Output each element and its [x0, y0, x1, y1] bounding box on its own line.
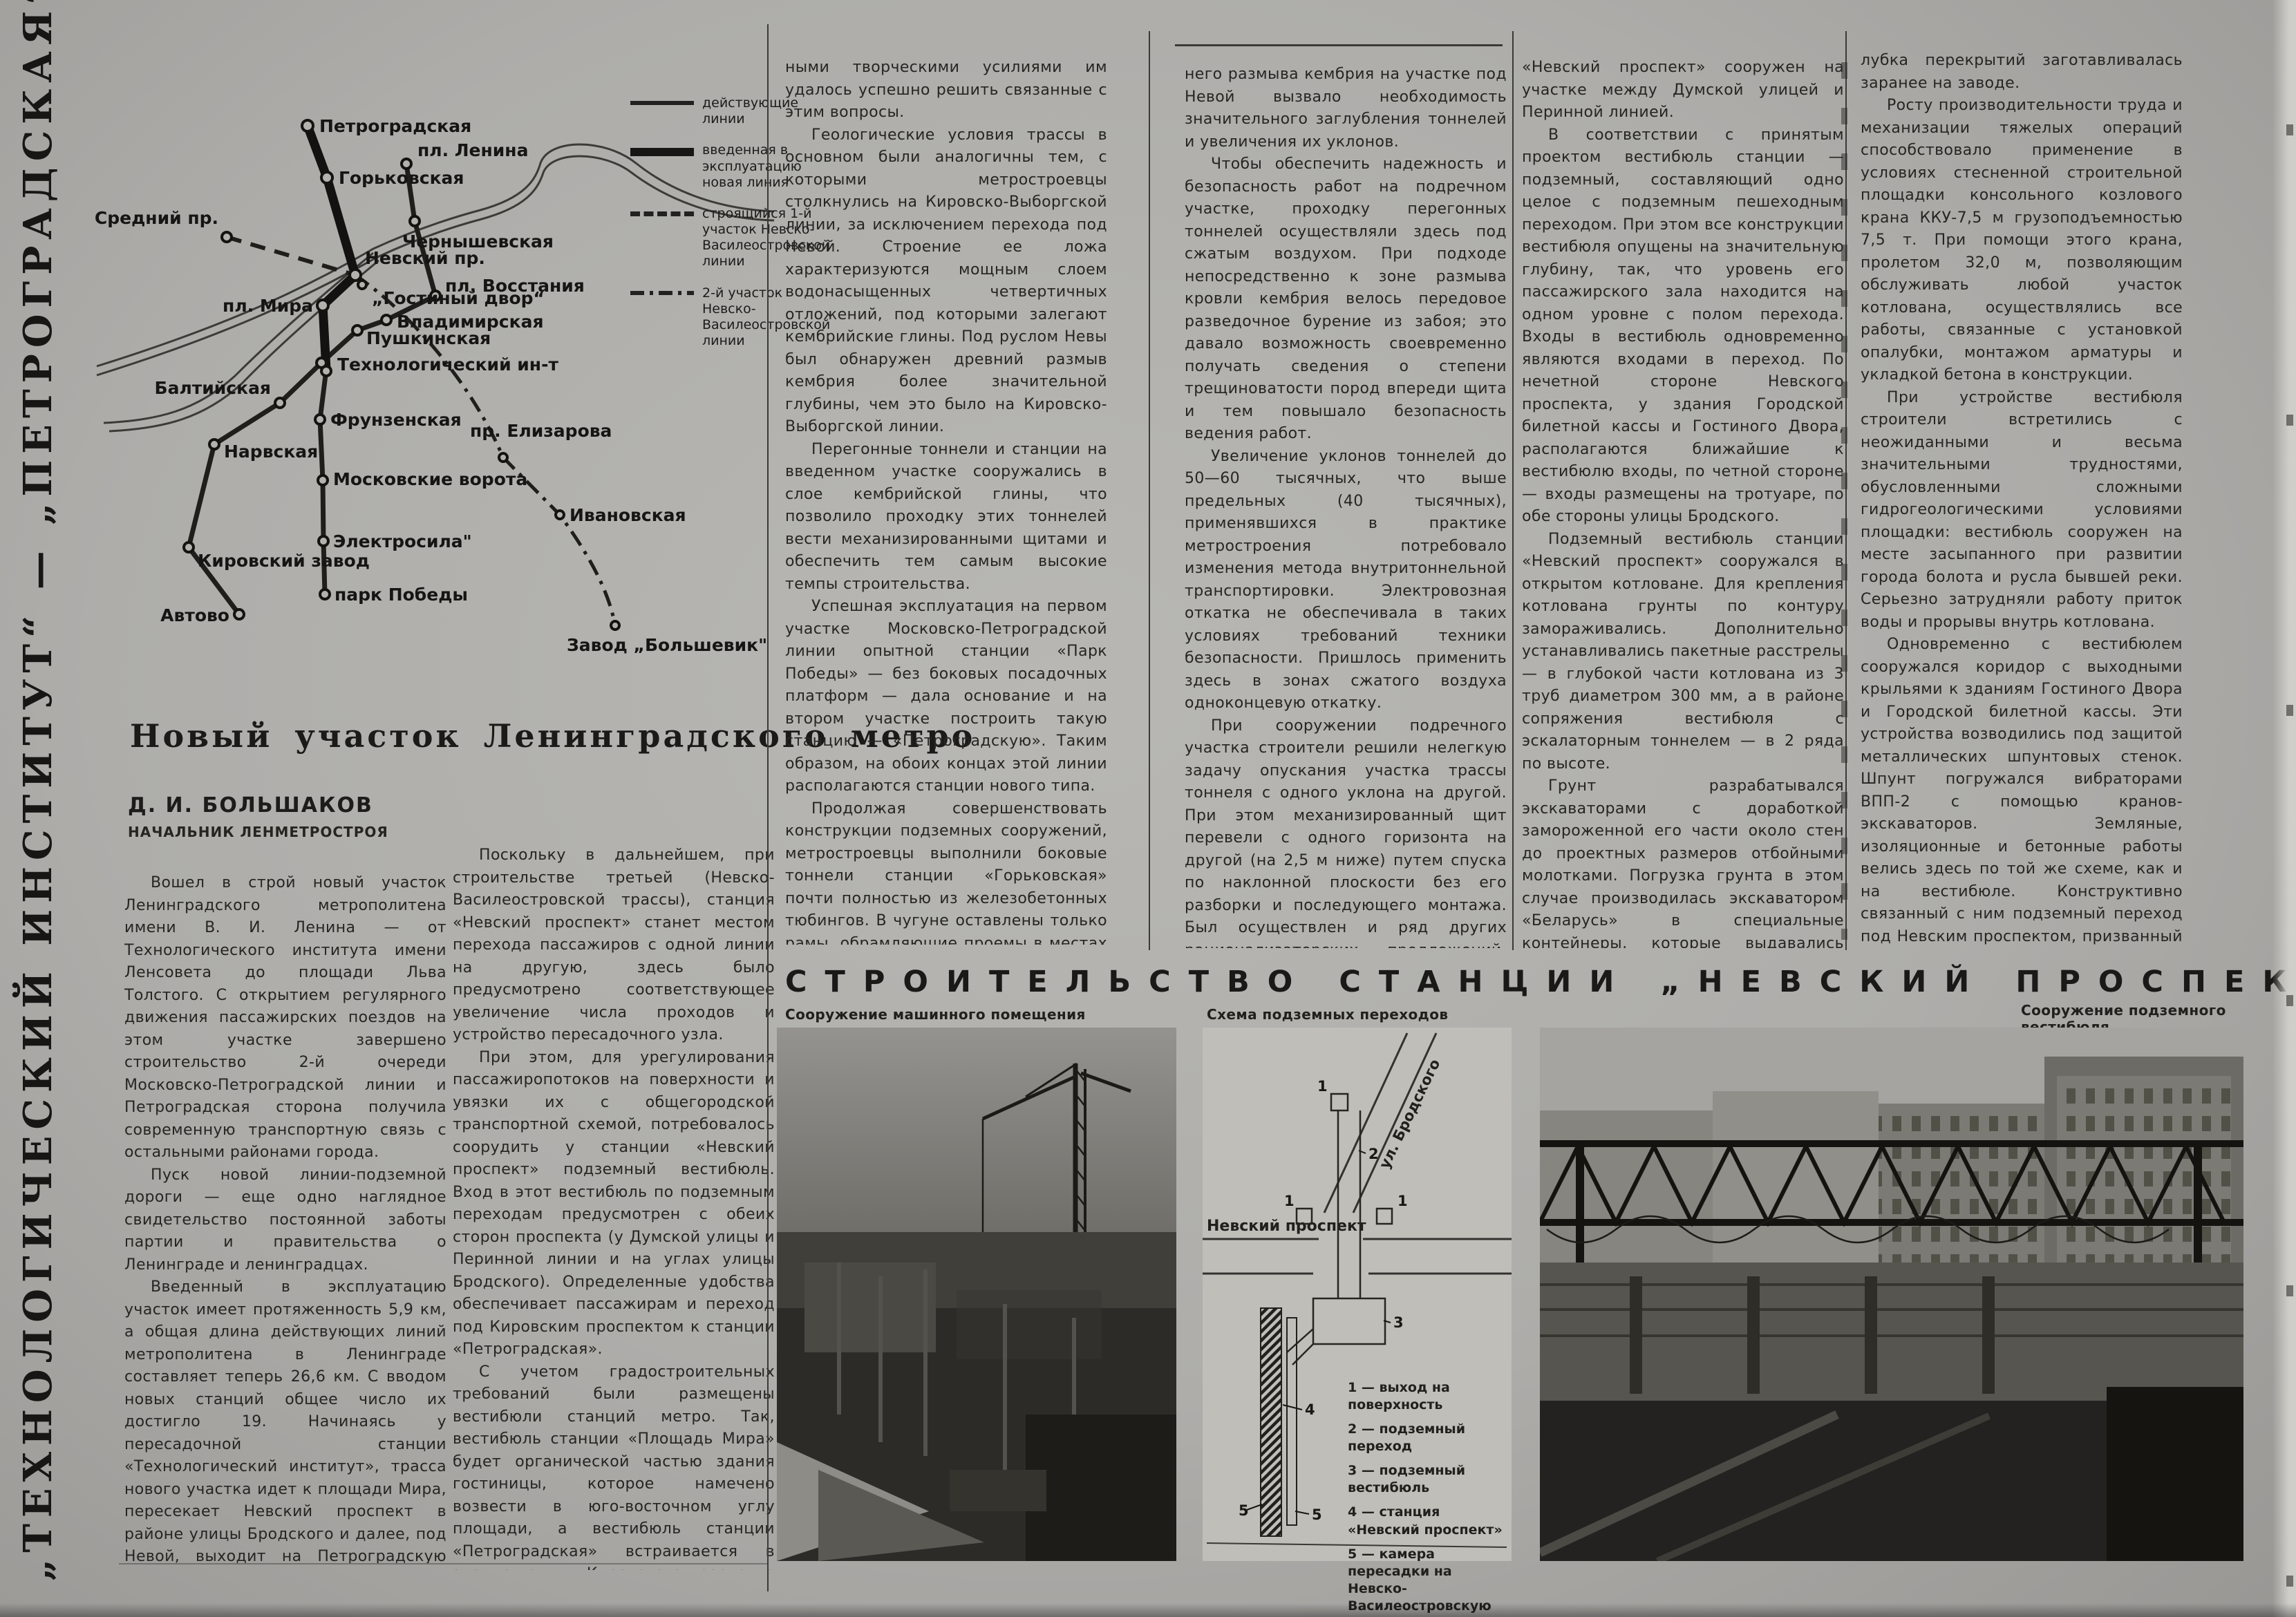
- column-divider: [767, 24, 769, 1591]
- map-legend-item: 2-й участок Невско-Василеостровской лини…: [630, 285, 803, 350]
- map-station-sredniy-pr: Средний пр.: [95, 208, 218, 228]
- diagram-marker-3: 3: [1393, 1314, 1404, 1331]
- scan-edge-bottom: [0, 1603, 2296, 1617]
- section-headline: СТРОИТЕЛЬСТВО СТАНЦИИ „НЕВСКИЙ ПРОСПЕКТ“: [785, 965, 2243, 999]
- diagram-legend: 1 — выход на поверхность 2 — подземный п…: [1348, 1379, 1504, 1617]
- article-column-5: «Невский проспект» сооружен на участке м…: [1522, 57, 1844, 948]
- map-station-zavod-bolshevik: Завод „Большевик": [567, 635, 767, 655]
- article-title: Новый участок Ленинградского метро: [130, 717, 766, 755]
- diagram-caption: Схема подземных переходов: [1207, 1006, 1448, 1023]
- scanned-newspaper-page: „ТЕХНОЛОГИЧЕСКИЙ ИНСТИТУТ“ — „ПЕТРОГРАДС…: [0, 0, 2296, 1617]
- article-author-role: НАЧАЛЬНИК ЛЕНМЕТРОСТРОЯ: [128, 824, 388, 840]
- article-column-4: него размыва кембрия на участке под Нево…: [1185, 64, 1507, 948]
- column-divider: [1149, 31, 1150, 950]
- metro-line-new-section: [308, 126, 355, 370]
- map-station-baltiyskaya: Балтийская: [155, 378, 271, 398]
- diagram-marker-1a: 1: [1317, 1078, 1328, 1095]
- map-station-narvskaya: Нарвская: [224, 442, 318, 462]
- horizontal-rule: [1175, 44, 1503, 46]
- excavation-midground: [1540, 1263, 2243, 1401]
- map-station-petrogradskaya: Петроградская: [319, 116, 471, 136]
- construction-photo-machinery-room: [777, 1028, 1176, 1561]
- metro-line-under-construction-1: [227, 237, 355, 275]
- map-station-pr-elizarova: пр. Елизарова: [470, 421, 612, 441]
- diagram-legend-item: 4 — станция «Невский проспект»: [1348, 1504, 1504, 1538]
- legend-line-construction1-icon: [630, 211, 694, 216]
- scan-edge-marks: [2286, 0, 2293, 1617]
- photo-caption-left: Сооружение машинного помещения: [785, 1006, 1086, 1023]
- diagram-marker-5a: 5: [1239, 1502, 1249, 1519]
- legend-line-existing-icon: [630, 101, 694, 105]
- map-station-pl-mira: пл. Мира: [223, 296, 313, 316]
- map-station-nevskiy-pr: Невский пр.: [365, 248, 485, 268]
- legend-line-construction2-icon: [630, 291, 694, 295]
- diagram-marker-1b: 1: [1284, 1193, 1295, 1209]
- print-bleed-marks: [1841, 62, 1847, 940]
- diagram-marker-4: 4: [1305, 1401, 1315, 1418]
- map-legend-item: действующие линии: [630, 95, 803, 127]
- article-column-2: Поскольку в дальнейшем, при строительств…: [453, 844, 775, 1570]
- article-author: Д. И. БОЛЬШАКОВ: [128, 793, 373, 817]
- map-legend: действующие линии введенная в эксплуатац…: [630, 95, 803, 364]
- map-station-park-pobedy: парк Победы: [335, 585, 468, 605]
- diagram-marker-2: 2: [1368, 1146, 1379, 1162]
- map-station-frunzenskaya: Фрунзенская: [330, 410, 462, 430]
- diagram-marker-5b: 5: [1312, 1506, 1322, 1523]
- diagram-legend-item: 1 — выход на поверхность: [1348, 1379, 1504, 1414]
- column-divider: [1512, 31, 1514, 950]
- map-station-elektrosila: Электросила": [333, 531, 472, 551]
- map-station-pl-lenina: пл. Ленина: [417, 140, 528, 160]
- construction-photo-vestibule: [1540, 1028, 2243, 1561]
- legend-line-new-icon: [630, 148, 694, 156]
- map-legend-item: строящийся 1-й участок Невско-Василеостр…: [630, 206, 803, 270]
- map-station-tekhnologichesky: Технологический ин-т: [337, 354, 558, 375]
- street-label-nevsky: Невский проспект: [1207, 1218, 1366, 1235]
- diagram-marker-1c: 1: [1398, 1193, 1408, 1209]
- map-station-pushkinskaya: Пушкинская: [366, 328, 491, 348]
- horizontal-rule: [119, 1563, 769, 1564]
- diagram-legend-item: 3 — подземный вестибюль: [1348, 1462, 1504, 1497]
- article-column-1: Вошел в строй новый участок Ленинградско…: [124, 872, 446, 1563]
- map-station-kirovskiy-zavod: Кировский завод: [198, 551, 370, 571]
- map-station-gorkovskaya: Горьковская: [339, 168, 464, 188]
- map-station-moskovskie-vorota: Московские ворота: [333, 469, 527, 489]
- map-station-ivanovskaya: Ивановская: [570, 505, 686, 525]
- article-column-3: ными творческими усилиями им удалось усп…: [785, 57, 1107, 945]
- map-legend-item: введенная в эксплуатацию новая линия: [630, 142, 803, 191]
- diagram-legend-item: 2 — подземный переход: [1348, 1421, 1504, 1455]
- article-column-6: лубка перекрытий заготавливалась заранее…: [1861, 50, 2183, 948]
- map-station-avtovo: Автово: [160, 605, 229, 625]
- excavation-foreground: [1540, 1387, 2243, 1561]
- map-station-pl-vosstaniya: пл. Восстания: [445, 276, 585, 296]
